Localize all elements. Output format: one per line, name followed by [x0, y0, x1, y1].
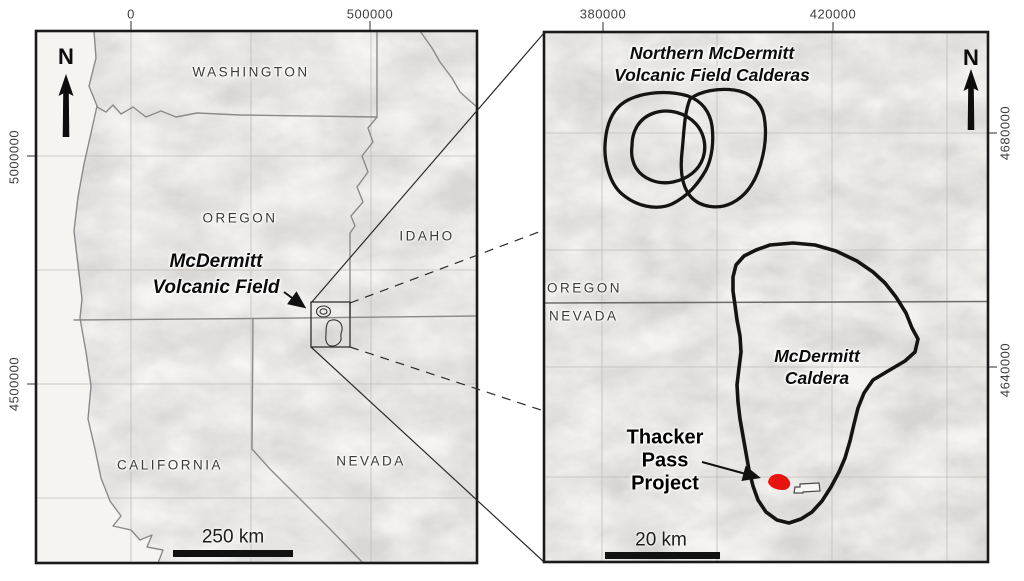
- axis-label-380000: 380000: [580, 8, 626, 21]
- scale-bar-left: [173, 550, 293, 557]
- axis-label-4680000: 4680000: [999, 106, 1012, 160]
- north-label-left: N: [58, 46, 74, 68]
- mcdermitt-volcanic-field-line1: McDermitt: [152, 249, 279, 275]
- axis-label-4640000: 4640000: [999, 343, 1012, 397]
- northern-calderas-line2: Volcanic Field Calderas: [614, 64, 810, 86]
- mcdermitt-caldera-label: McDermitt Caldera: [774, 345, 860, 389]
- state-label-california: CALIFORNIA: [117, 458, 223, 472]
- mcdermitt-volcanic-field-label: McDermitt Volcanic Field: [152, 249, 279, 301]
- mcdermitt-caldera-line2: Caldera: [774, 367, 860, 389]
- thacker-pass-line1: Thacker: [627, 427, 704, 450]
- map-figure: 0 500000 380000 420000 5000000 4500000 4…: [0, 0, 1024, 581]
- state-label-oregon: OREGON: [202, 211, 277, 225]
- scale-bar-right: [605, 552, 720, 559]
- right-terrain-texture: [544, 32, 988, 562]
- mcdermitt-caldera-line1: McDermitt: [774, 345, 860, 367]
- north-label-right: N: [963, 47, 979, 69]
- scale-label-right: 20 km: [635, 531, 687, 550]
- state-label-idaho: IDAHO: [399, 229, 454, 243]
- mcdermitt-volcanic-field-line2: Volcanic Field: [152, 275, 279, 301]
- northern-calderas-line1: Northern McDermitt: [614, 42, 810, 64]
- thacker-pass-line3: Project: [627, 473, 704, 496]
- state-label-washington: WASHINGTON: [192, 65, 309, 79]
- axis-label-420000: 420000: [810, 8, 856, 21]
- state-label-oregon-inset: OREGON: [547, 281, 622, 295]
- axis-label-4500000: 4500000: [8, 357, 21, 411]
- scale-label-left: 250 km: [202, 528, 264, 547]
- axis-label-500000: 500000: [347, 8, 393, 21]
- axis-label-0: 0: [127, 8, 135, 21]
- axis-label-5000000: 5000000: [8, 130, 21, 184]
- state-label-nevada: NEVADA: [336, 454, 406, 468]
- thacker-pass-project-label: Thacker Pass Project: [627, 427, 704, 496]
- thacker-pass-line2: Pass: [627, 450, 704, 473]
- right-map-panel: [544, 32, 988, 562]
- state-label-nevada-inset: NEVADA: [549, 309, 619, 323]
- northern-calderas-label: Northern McDermitt Volcanic Field Calder…: [614, 42, 810, 86]
